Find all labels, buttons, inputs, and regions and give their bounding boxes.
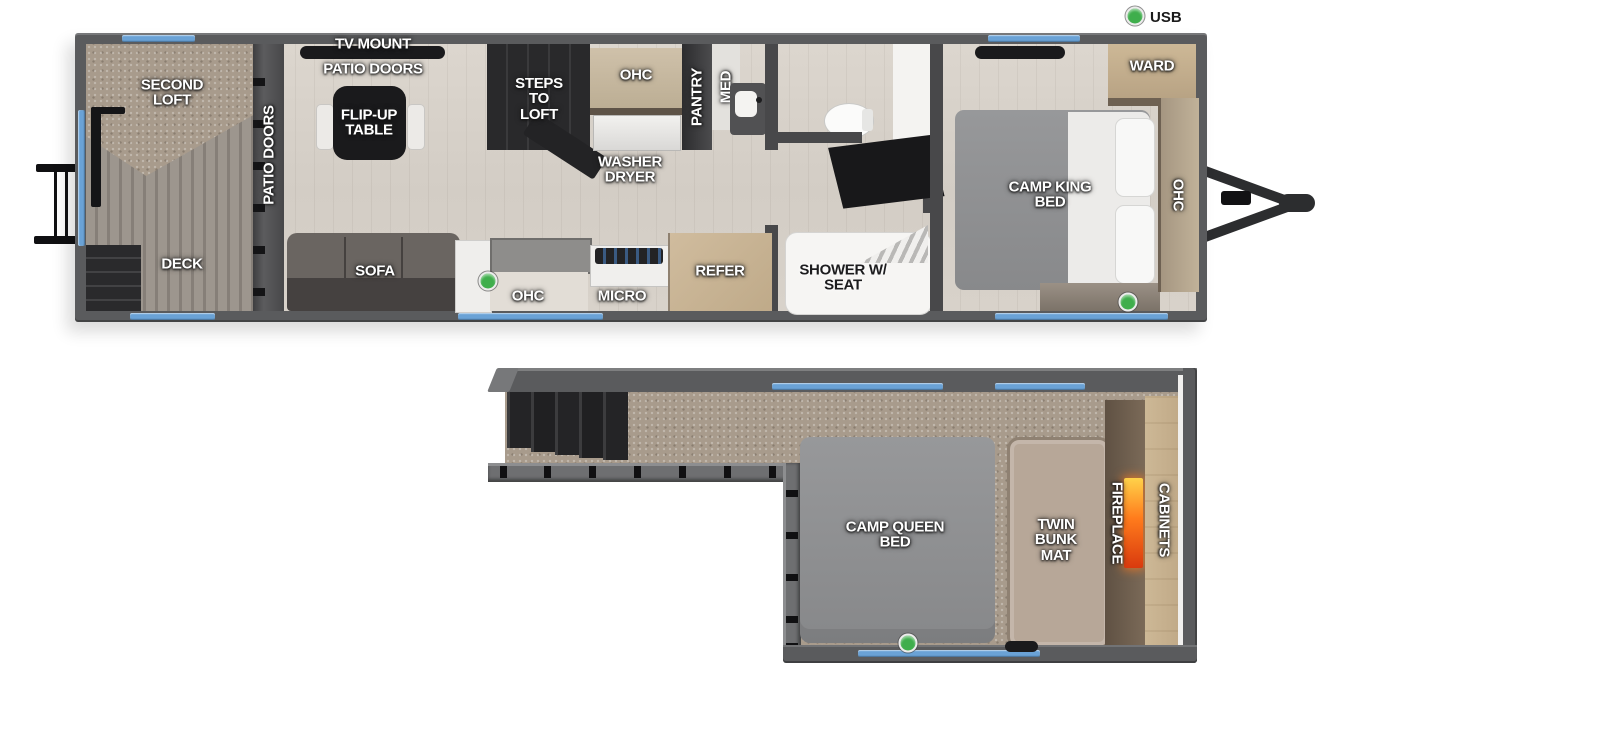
bedroom-usb-dot (1119, 293, 1138, 312)
label-patio-doors-top: PATIO DOORS (323, 61, 422, 76)
loft-ladder-rung (91, 107, 125, 114)
loft-railing-horizontal (488, 463, 800, 482)
label-twin-bunk-mat: TWIN BUNK MAT (1029, 517, 1084, 563)
loft-usb-dot (899, 634, 918, 653)
window-accent (995, 313, 1168, 320)
loft-right-wall-trim (1178, 375, 1183, 653)
window-accent (130, 313, 215, 320)
label-ohc-upper: OHC (620, 67, 652, 82)
toilet-tank (862, 109, 873, 131)
toilet-room-wall (893, 44, 930, 140)
loft-ladder (91, 107, 101, 207)
kitchen-counter (490, 238, 592, 274)
main-floorplan: SECOND LOFT DECK PATIO DOORS TV MOUNT PA… (75, 33, 1207, 322)
fireplace-glow (1124, 478, 1143, 568)
label-camp-king-bed: CAMP KING BED (1004, 180, 1096, 211)
window-accent (995, 383, 1085, 390)
label-ward: WARD (1130, 58, 1175, 73)
flip-up-table-chair-left (316, 104, 334, 150)
label-flip-up-table: FLIP-UP TABLE (337, 108, 401, 139)
label-second-loft: SECOND LOFT (136, 78, 208, 109)
bath-wall-upper (765, 44, 778, 150)
label-patio-doors-side: PATIO DOORS (261, 105, 276, 204)
loft-railing-vertical (783, 463, 801, 657)
bed-foot-shelf (1040, 283, 1160, 311)
king-bed-pillow-top (1115, 118, 1155, 197)
stove-top (595, 248, 663, 264)
kitchen-usb-dot (479, 272, 498, 291)
label-ohc-bedroom: OHC (1170, 179, 1185, 211)
window-accent (122, 35, 195, 42)
bedroom-wall (930, 44, 943, 311)
label-ohc-kitchen: OHC (512, 288, 544, 303)
usb-legend-dot (1126, 7, 1145, 26)
bath-partition-wall (778, 132, 862, 143)
label-sofa: SOFA (355, 263, 395, 278)
label-camp-queen-bed: CAMP QUEEN BED (843, 520, 948, 551)
label-washer-dryer: WASHER DRYER (594, 155, 666, 186)
label-cabinets: CABINETS (1156, 483, 1171, 557)
label-deck: DECK (161, 256, 202, 271)
label-micro: MICRO (598, 288, 647, 303)
window-accent (988, 35, 1080, 42)
usb-legend-label: USB (1150, 9, 1182, 26)
washer-dryer-unit (593, 115, 681, 151)
window-accent (772, 383, 943, 390)
wardrobe (1108, 44, 1196, 106)
label-shower-w-seat: SHOWER W/ SEAT (796, 263, 891, 294)
flip-up-table-chair-right (407, 104, 425, 150)
window-accent (458, 313, 603, 320)
floorplan-canvas: USB SECOND LOFT DECK PATIO DOORS TV MOUN… (0, 0, 1600, 737)
label-tv-mount: TV MOUNT (335, 36, 411, 51)
loft-entry-step (1005, 641, 1038, 652)
label-steps-to-loft: STEPS TO LOFT (511, 76, 567, 122)
usb-legend: USB (1120, 4, 1200, 30)
kitchen-sink (730, 83, 766, 135)
label-refer: REFER (695, 263, 744, 278)
bedroom-tv-mount-bar (975, 46, 1065, 59)
deck-steps (86, 245, 141, 311)
trailer-hitch-icon (1203, 155, 1323, 255)
label-pantry: PANTRY (689, 68, 704, 126)
second-floorplan: CAMP QUEEN BED TWIN BUNK MAT FIREPLACE C… (480, 360, 1200, 670)
loft-right-wall (1183, 368, 1197, 663)
loft-stairs (507, 392, 627, 462)
king-bed-pillow-bottom (1115, 205, 1155, 284)
window-accent (78, 110, 85, 246)
label-fireplace: FIREPLACE (1109, 482, 1124, 564)
